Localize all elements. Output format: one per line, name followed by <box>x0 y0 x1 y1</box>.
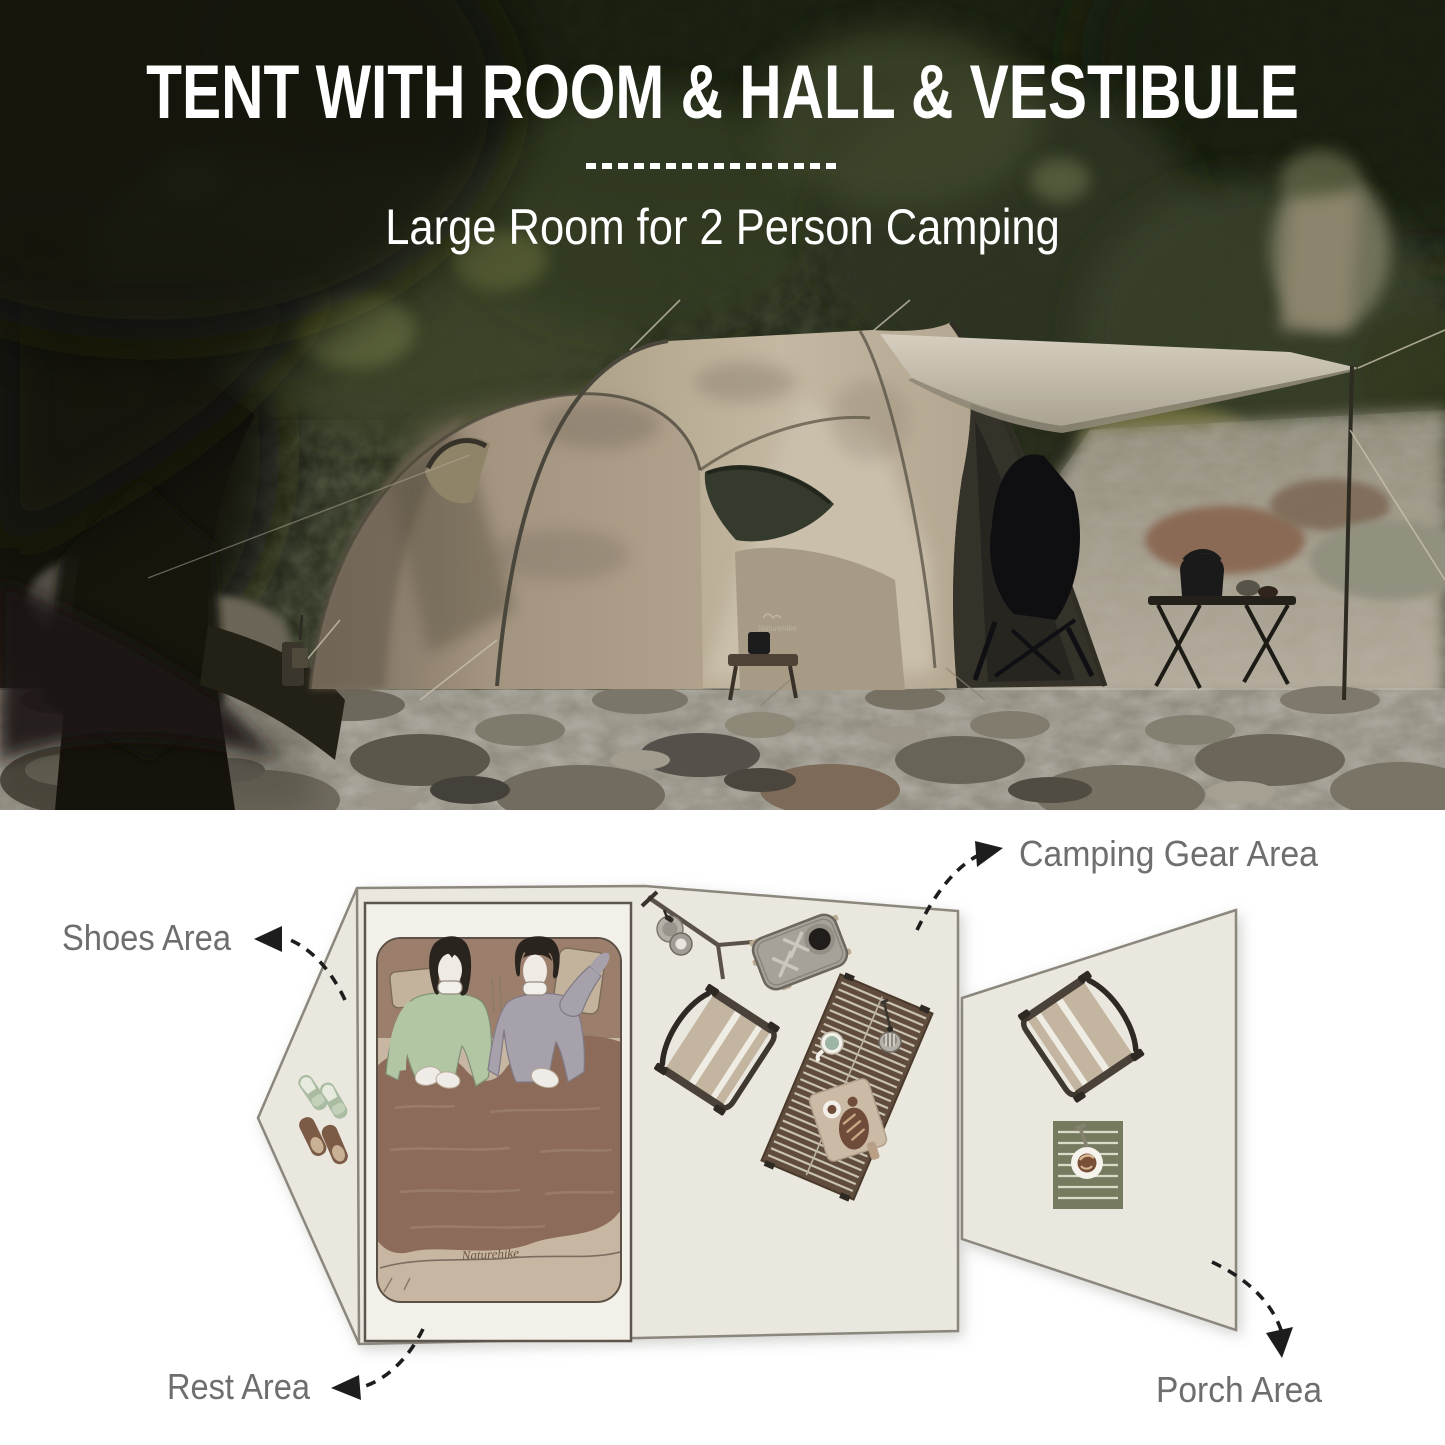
svg-text:Shoes Area: Shoes Area <box>62 917 232 958</box>
svg-text:Naturehike: Naturehike <box>758 624 797 633</box>
svg-text:Rest Area: Rest Area <box>167 1366 311 1407</box>
svg-text:Camping Gear Area: Camping Gear Area <box>1019 833 1319 874</box>
svg-text:Naturehike: Naturehike <box>460 1245 519 1263</box>
svg-text:Porch Area: Porch Area <box>1156 1369 1323 1410</box>
